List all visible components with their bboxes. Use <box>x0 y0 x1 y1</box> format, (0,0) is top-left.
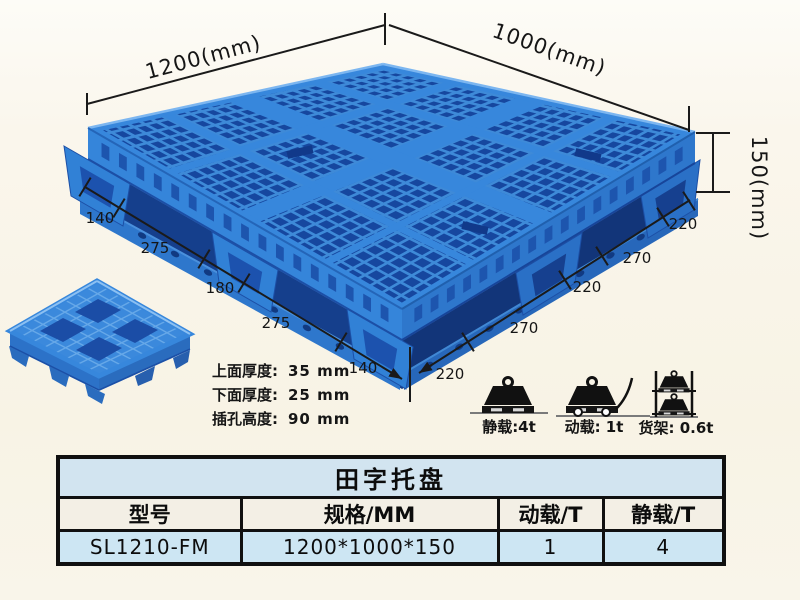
width-dimension-label: 1000(mm) <box>489 18 609 80</box>
header-size: 规格/MM <box>241 498 498 531</box>
spec-table-data-row: SL1210-FM 1200*1000*150 1 4 <box>58 531 724 565</box>
spec-table: 田字托盘 型号 规格/MM 动载/T 静载/T SL1210-FM 1200*1… <box>56 455 726 566</box>
spec-line-bottom-thickness: 下面厚度:25 mm <box>212 383 350 407</box>
svg-text:220: 220 <box>573 278 602 296</box>
spec-line-fork-height: 插孔高度:90 mm <box>212 407 350 431</box>
svg-text:180: 180 <box>206 279 235 297</box>
cell-size: 1200*1000*150 <box>241 531 498 565</box>
svg-text:275: 275 <box>141 239 170 257</box>
svg-text:220: 220 <box>669 215 698 233</box>
static-load-icon <box>470 378 548 414</box>
product-sheet: 1200(mm) 1000(mm) 150(mm) 140 275 180 27… <box>0 0 800 600</box>
header-dynamic-load: 动载/T <box>498 498 603 531</box>
dynamic-load-icon <box>556 378 650 417</box>
dimension-bracket-150 <box>696 133 730 192</box>
svg-text:270: 270 <box>510 319 539 337</box>
spec-line-top-thickness: 上面厚度:35 mm <box>212 359 350 383</box>
cell-model: SL1210-FM <box>58 531 241 565</box>
static-load-label: 静载:4t <box>482 418 536 436</box>
thickness-specs: 上面厚度:35 mm 下面厚度:25 mm 插孔高度:90 mm <box>212 359 350 431</box>
svg-text:140: 140 <box>349 359 378 377</box>
length-dimension-label: 1200(mm) <box>143 30 264 84</box>
spec-table-header-row: 型号 规格/MM 动载/T 静载/T <box>58 498 724 531</box>
height-dimension-label: 150(mm) <box>747 136 771 240</box>
svg-text:220: 220 <box>436 365 465 383</box>
load-rating-icons: 静载:4t 动载: 1t 货架: 0.6t <box>470 371 713 437</box>
svg-text:275: 275 <box>262 314 291 332</box>
svg-text:140: 140 <box>86 209 115 227</box>
rack-load-label: 货架: 0.6t <box>639 419 714 437</box>
cell-static-load: 4 <box>603 531 724 565</box>
cell-dynamic-load: 1 <box>498 531 603 565</box>
header-model: 型号 <box>58 498 241 531</box>
small-pallet-illustration <box>9 281 190 404</box>
rack-load-icon <box>650 371 698 417</box>
svg-text:270: 270 <box>623 249 652 267</box>
header-static-load: 静载/T <box>603 498 724 531</box>
dynamic-load-label: 动载: 1t <box>565 418 624 436</box>
spec-table-title: 田字托盘 <box>58 457 724 498</box>
